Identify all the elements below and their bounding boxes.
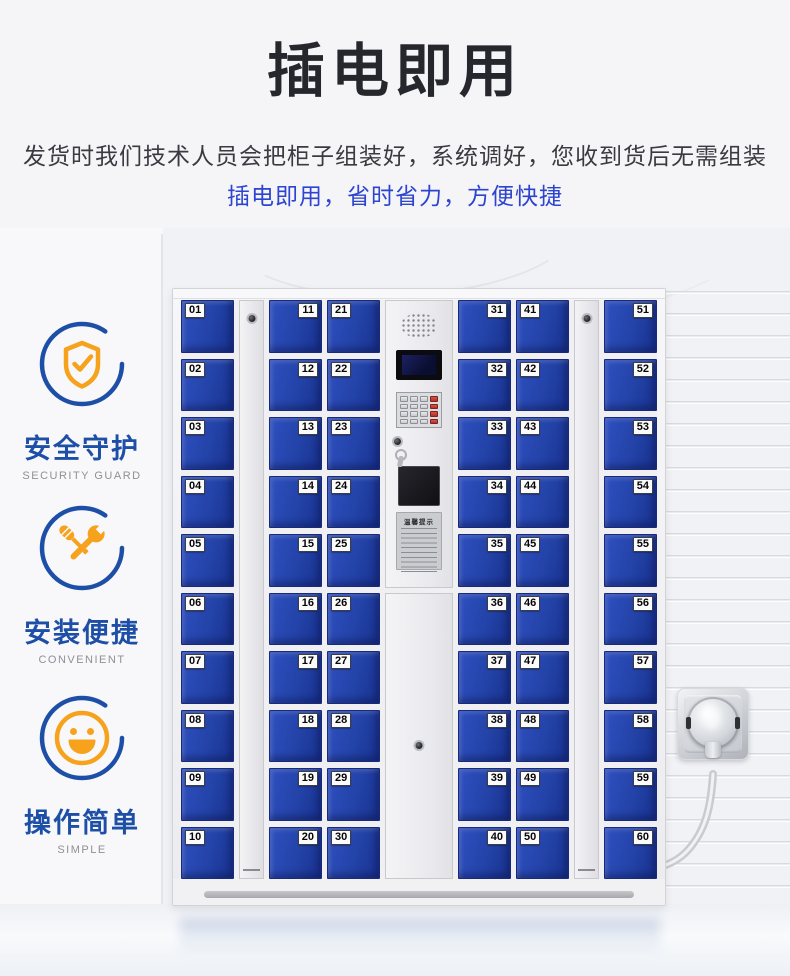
keypad-red-key — [430, 396, 438, 402]
locker-door-23: 23 — [327, 417, 380, 470]
locker-door-35: 35 — [458, 534, 511, 587]
door-number-label: 29 — [331, 771, 351, 786]
keypad-key — [410, 404, 418, 410]
door-number-label: 56 — [633, 596, 653, 611]
locker-door-29: 29 — [327, 768, 380, 821]
locker-door-12: 12 — [269, 359, 322, 412]
cabinet-top-frame — [173, 289, 665, 299]
description-line-1: 发货时我们技术人员会把柜子组装好，系统调好，您收到货后无需组装 — [0, 137, 790, 171]
keypad-key — [420, 411, 428, 417]
door-number-label: 24 — [331, 479, 351, 494]
keypad-key — [400, 419, 408, 425]
locker-door-05: 05 — [181, 534, 234, 587]
door-number-label: 06 — [185, 596, 205, 611]
console-upper-door: 温馨提示 — [385, 300, 453, 588]
plug-neck — [705, 742, 721, 758]
door-number-label: 45 — [520, 537, 540, 552]
locker-door-14: 14 — [269, 476, 322, 529]
door-number-label: 50 — [520, 830, 540, 845]
door-number-label: 08 — [185, 713, 205, 728]
door-number-label: 13 — [298, 420, 318, 435]
locker-door-55: 55 — [604, 534, 657, 587]
locker-cabinet: 01020304050607080910 1112131415161718192… — [172, 288, 666, 906]
keypad-key — [400, 411, 408, 417]
door-number-label: 58 — [633, 713, 653, 728]
locker-door-43: 43 — [516, 417, 569, 470]
locker-door-04: 04 — [181, 476, 234, 529]
locker-door-22: 22 — [327, 359, 380, 412]
door-column: 41424344454647484950 — [516, 300, 569, 879]
door-number-label: 54 — [633, 479, 653, 494]
locker-door-56: 56 — [604, 593, 657, 646]
screen-glass — [402, 355, 436, 375]
door-number-label: 04 — [185, 479, 205, 494]
cabinet-base — [173, 879, 665, 905]
hanging-keys — [394, 449, 408, 465]
keyhole-icon — [583, 315, 590, 322]
door-number-label: 40 — [487, 830, 507, 845]
locker-door-31: 31 — [458, 300, 511, 353]
locker-door-53: 53 — [604, 417, 657, 470]
locker-door-09: 09 — [181, 768, 234, 821]
locker-door-40: 40 — [458, 827, 511, 880]
door-number-label: 35 — [487, 537, 507, 552]
door-number-label: 36 — [487, 596, 507, 611]
door-number-label: 38 — [487, 713, 507, 728]
locker-door-25: 25 — [327, 534, 380, 587]
locker-door-34: 34 — [458, 476, 511, 529]
master-door — [239, 300, 264, 879]
console-column: 温馨提示 — [385, 300, 453, 879]
locker-door-46: 46 — [516, 593, 569, 646]
door-number-label: 57 — [633, 654, 653, 669]
locker-door-07: 07 — [181, 651, 234, 704]
door-number-label: 34 — [487, 479, 507, 494]
door-number-label: 02 — [185, 362, 205, 377]
door-number-label: 14 — [298, 479, 318, 494]
locker-door-47: 47 — [516, 651, 569, 704]
locker-door-39: 39 — [458, 768, 511, 821]
door-number-label: 42 — [520, 362, 540, 377]
door-number-label: 51 — [633, 303, 653, 318]
locker-door-21: 21 — [327, 300, 380, 353]
locker-door-26: 26 — [327, 593, 380, 646]
locker-door-36: 36 — [458, 593, 511, 646]
door-number-label: 05 — [185, 537, 205, 552]
door-number-label: 31 — [487, 303, 507, 318]
keyhole-icon — [394, 438, 401, 445]
locker-door-15: 15 — [269, 534, 322, 587]
keypad-key — [420, 404, 428, 410]
locker-door-30: 30 — [327, 827, 380, 880]
locker-door-41: 41 — [516, 300, 569, 353]
locker-door-42: 42 — [516, 359, 569, 412]
door-number-label: 37 — [487, 654, 507, 669]
keypad-red-key — [430, 411, 438, 417]
locker-door-20: 20 — [269, 827, 322, 880]
door-number-label: 27 — [331, 654, 351, 669]
door-number-label: 48 — [520, 713, 540, 728]
locker-door-13: 13 — [269, 417, 322, 470]
master-door — [574, 300, 599, 879]
door-number-label: 43 — [520, 420, 540, 435]
door-number-label: 30 — [331, 830, 351, 845]
door-number-label: 25 — [331, 537, 351, 552]
door-number-label: 33 — [487, 420, 507, 435]
locker-door-11: 11 — [269, 300, 322, 353]
notice-label: 温馨提示 — [396, 512, 442, 570]
keyhole-icon — [248, 315, 255, 322]
console-lower-door — [385, 593, 453, 879]
keypad-key — [400, 404, 408, 410]
door-number-label: 52 — [633, 362, 653, 377]
locker-door-19: 19 — [269, 768, 322, 821]
locker-door-57: 57 — [604, 651, 657, 704]
locker-door-06: 06 — [181, 593, 234, 646]
locker-door-28: 28 — [327, 710, 380, 763]
locker-door-44: 44 — [516, 476, 569, 529]
locker-door-02: 02 — [181, 359, 234, 412]
door-number-label: 01 — [185, 303, 205, 318]
locker-door-01: 01 — [181, 300, 234, 353]
locker-door-38: 38 — [458, 710, 511, 763]
cabinet-foot-bar — [204, 891, 634, 898]
door-number-label: 39 — [487, 771, 507, 786]
door-number-label: 10 — [185, 830, 205, 845]
door-number-label: 32 — [487, 362, 507, 377]
door-number-label: 60 — [633, 830, 653, 845]
door-number-label: 12 — [298, 362, 318, 377]
locker-door-17: 17 — [269, 651, 322, 704]
door-number-label: 26 — [331, 596, 351, 611]
door-number-label: 28 — [331, 713, 351, 728]
locker-door-52: 52 — [604, 359, 657, 412]
keypad-red-key — [430, 419, 438, 425]
keypad-key — [410, 419, 418, 425]
locker-door-08: 08 — [181, 710, 234, 763]
door-column: 11121314151617181920 — [269, 300, 322, 879]
door-number-label: 20 — [298, 830, 318, 845]
door-number-label: 19 — [298, 771, 318, 786]
locker-door-03: 03 — [181, 417, 234, 470]
door-number-label: 53 — [633, 420, 653, 435]
door-column: 51525354555657585960 — [604, 300, 657, 879]
wall-socket — [677, 688, 749, 760]
locker-door-60: 60 — [604, 827, 657, 880]
keypad-key — [420, 396, 428, 402]
door-number-label: 44 — [520, 479, 540, 494]
locker-door-45: 45 — [516, 534, 569, 587]
locker-door-51: 51 — [604, 300, 657, 353]
cabinet-columns: 01020304050607080910 1112131415161718192… — [181, 300, 657, 879]
door-number-label: 21 — [331, 303, 351, 318]
locker-door-54: 54 — [604, 476, 657, 529]
door-column: 21222324252627282930 — [327, 300, 380, 879]
notice-title: 温馨提示 — [401, 516, 437, 526]
socket-plug — [687, 697, 739, 749]
door-number-label: 16 — [298, 596, 318, 611]
door-number-label: 03 — [185, 420, 205, 435]
locker-door-48: 48 — [516, 710, 569, 763]
door-number-label: 11 — [298, 303, 318, 318]
speaker-grille-icon — [401, 313, 437, 338]
keyhole-icon — [416, 742, 423, 749]
door-number-label: 18 — [298, 713, 318, 728]
console-lock — [394, 438, 414, 464]
keypad-red-key — [430, 404, 438, 410]
product-photo: 安全守护 SECURITY GUARD 安装便捷 — [0, 228, 790, 976]
locker-door-37: 37 — [458, 651, 511, 704]
locker-door-32: 32 — [458, 359, 511, 412]
door-number-label: 23 — [331, 420, 351, 435]
keypad-key — [400, 396, 408, 402]
door-number-label: 49 — [520, 771, 540, 786]
locker-door-59: 59 — [604, 768, 657, 821]
door-number-label: 41 — [520, 303, 540, 318]
notice-text-lines — [401, 528, 437, 572]
scanner-window — [398, 466, 440, 506]
door-number-label: 46 — [520, 596, 540, 611]
door-number-label: 59 — [633, 771, 653, 786]
product-poster: 插电即用 发货时我们技术人员会把柜子组装好，系统调好，您收到货后无需组装 插电即… — [0, 0, 790, 976]
keypad-key — [420, 419, 428, 425]
page-title: 插电即用 — [0, 24, 790, 108]
keypad — [396, 392, 442, 428]
door-number-label: 07 — [185, 654, 205, 669]
locker-door-50: 50 — [516, 827, 569, 880]
door-number-label: 47 — [520, 654, 540, 669]
plug-highlight — [698, 702, 723, 732]
locker-door-16: 16 — [269, 593, 322, 646]
display-screen — [396, 350, 442, 380]
locker-door-58: 58 — [604, 710, 657, 763]
locker-door-49: 49 — [516, 768, 569, 821]
door-number-label: 09 — [185, 771, 205, 786]
keypad-key — [410, 411, 418, 417]
door-column: 01020304050607080910 — [181, 300, 234, 879]
door-column: 31323334353637383940 — [458, 300, 511, 879]
locker-door-24: 24 — [327, 476, 380, 529]
door-number-label: 17 — [298, 654, 318, 669]
keypad-key — [410, 396, 418, 402]
locker-door-10: 10 — [181, 827, 234, 880]
locker-door-27: 27 — [327, 651, 380, 704]
locker-door-33: 33 — [458, 417, 511, 470]
door-number-label: 55 — [633, 537, 653, 552]
door-number-label: 22 — [331, 362, 351, 377]
locker-door-18: 18 — [269, 710, 322, 763]
door-number-label: 15 — [298, 537, 318, 552]
